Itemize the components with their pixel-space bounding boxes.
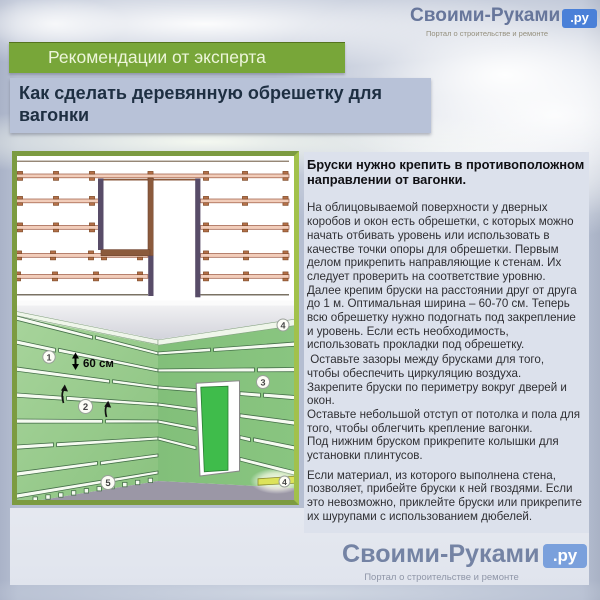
svg-text:4: 4 xyxy=(282,477,287,487)
svg-text:4: 4 xyxy=(280,320,285,330)
svg-text:1: 1 xyxy=(46,352,51,362)
svg-text:60 см: 60 см xyxy=(83,358,114,370)
svg-text:2: 2 xyxy=(83,402,88,413)
svg-text:3: 3 xyxy=(260,378,265,388)
svg-text:5: 5 xyxy=(105,478,111,489)
